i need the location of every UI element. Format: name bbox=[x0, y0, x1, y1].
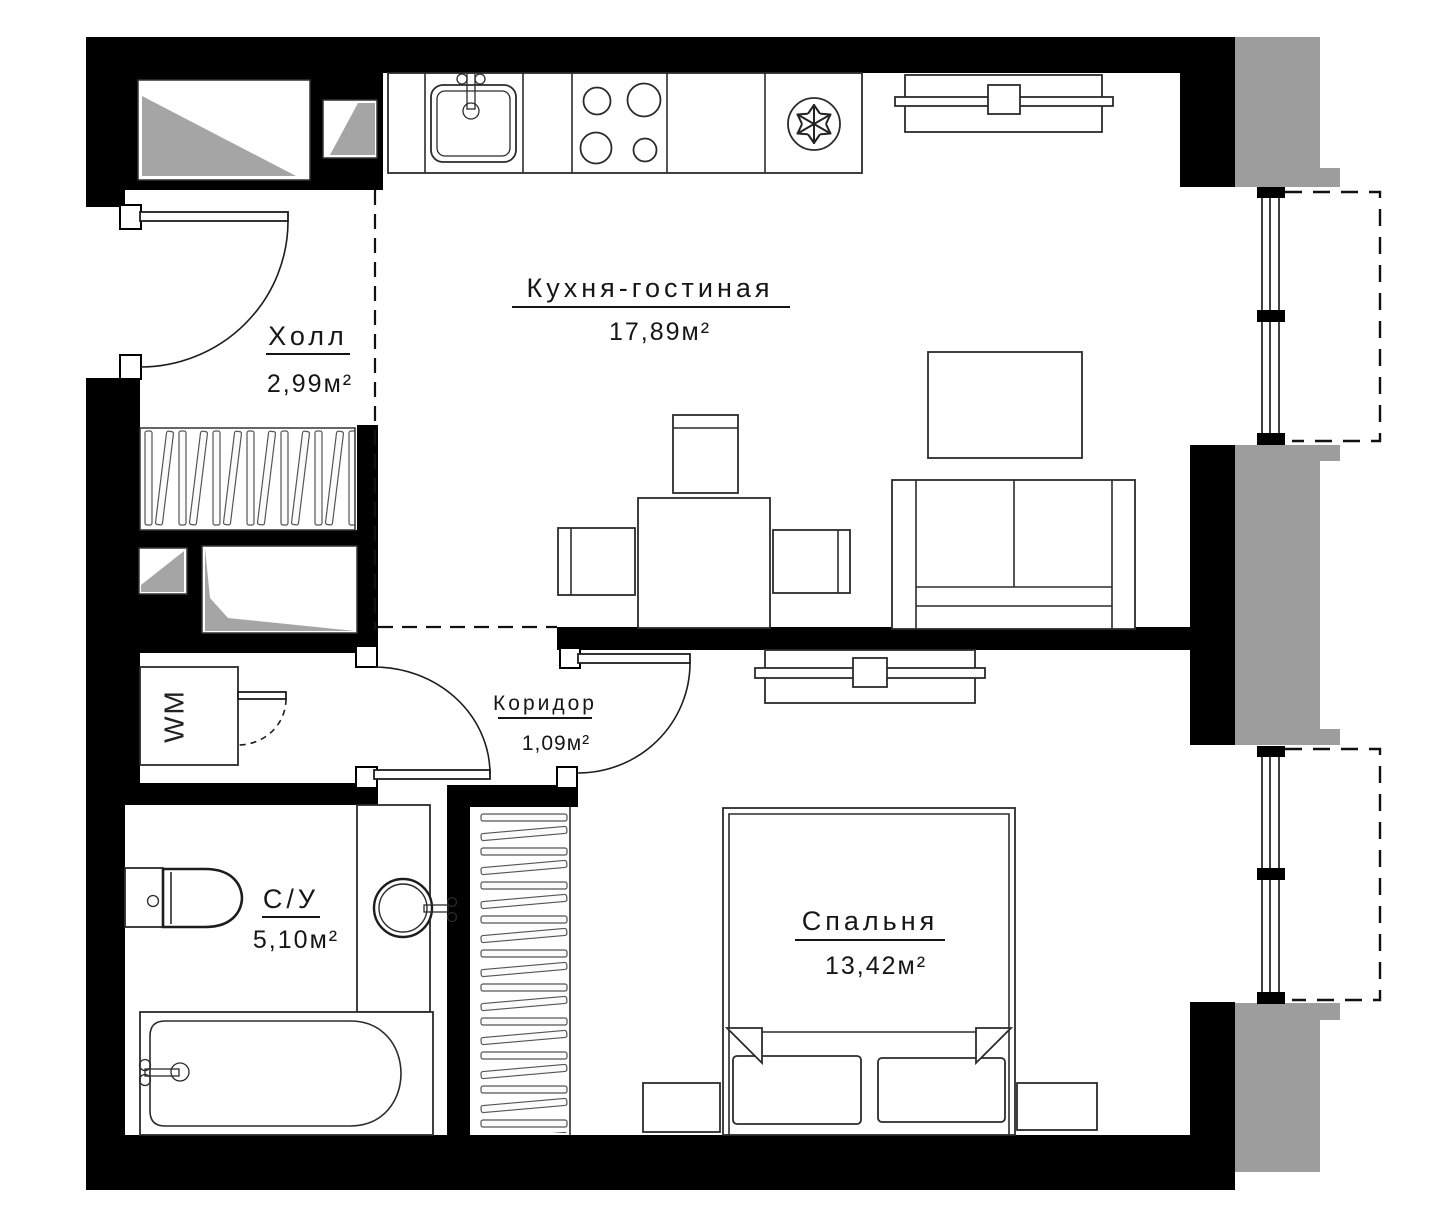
floor-plan: WM bbox=[0, 0, 1440, 1223]
nightstand-icon bbox=[1017, 1083, 1097, 1130]
niche-door-leaf bbox=[238, 692, 286, 699]
tv-console-icon bbox=[895, 75, 1113, 132]
sofa-icon bbox=[892, 480, 1135, 629]
wardrobe-bedroom bbox=[478, 807, 570, 1135]
room-area-corridor: 1,09м² bbox=[522, 732, 590, 755]
tv-console-icon bbox=[755, 650, 985, 703]
floor-plan-drawing: WM bbox=[0, 0, 1440, 1223]
room-area-bathroom: 5,10м² bbox=[253, 926, 339, 954]
chair-icon bbox=[558, 528, 635, 595]
washer-label: WM bbox=[158, 689, 189, 743]
room-area-kitchen-living: 17,89м² bbox=[609, 318, 711, 346]
coffee-table-icon bbox=[928, 352, 1082, 458]
room-label-hall: Холл bbox=[268, 321, 348, 351]
room-area-hall: 2,99м² bbox=[267, 370, 353, 398]
room-label-bedroom: Спальня bbox=[802, 906, 939, 936]
wardrobe-hall bbox=[140, 428, 355, 530]
pillow-icon bbox=[878, 1058, 1005, 1122]
chair-icon bbox=[673, 415, 738, 493]
sink-icon bbox=[431, 73, 516, 162]
fridge-snowflake-icon bbox=[788, 98, 840, 150]
room-area-bedroom: 13,42м² bbox=[825, 952, 927, 980]
toilet-icon bbox=[125, 868, 242, 927]
room-label-bathroom: С/У bbox=[263, 884, 319, 914]
pillow-icon bbox=[733, 1056, 861, 1124]
bathtub-icon bbox=[140, 1012, 434, 1135]
room-label-kitchen-living: Кухня-гостиная bbox=[526, 273, 773, 303]
nightstand-icon bbox=[643, 1083, 720, 1132]
kitchen-counter bbox=[388, 73, 862, 173]
room-label-corridor: Коридор bbox=[493, 692, 597, 715]
